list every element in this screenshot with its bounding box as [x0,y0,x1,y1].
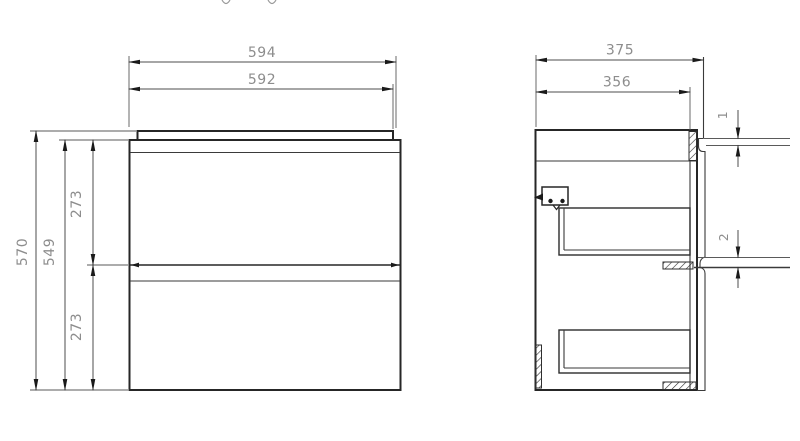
cabinet-dimension-drawing: 594 592 570 549 273 273 [0,0,800,441]
lower-drawer-box [559,330,690,373]
wall-rail-section-hatch-bottom [663,382,696,390]
side-cabinet-body [536,130,698,390]
dim-label-rear-rail-gap: 2 [716,233,731,241]
dim-label-lower-drawer-height: 273 [69,313,85,341]
wall-rail-section-hatch-middle [663,262,693,269]
mounting-bracket [534,187,568,210]
upper-drawer-box [559,208,690,255]
dim-label-overall-width: 594 [248,45,276,61]
wall-rail-section-hatch-top [689,132,697,161]
bracket-screw [560,199,564,203]
rear-profile-hook-top [699,139,706,268]
front-view [130,131,401,390]
dim-label-top-rear-gap: 1 [715,111,730,119]
front-top-panel [138,131,394,140]
front-height-dimensions: 570 549 273 273 [15,131,136,390]
top-rear-gap-dimension: 1 [704,110,790,167]
gap-tick-right [391,263,399,268]
dim-label-top-panel-width: 592 [248,72,276,88]
gap-tick-left [131,263,139,268]
dim-label-overall-depth: 375 [606,43,634,59]
front-panel-section-hatch-bottom-left [536,345,542,388]
side-depth-dimensions: 375 356 [536,43,704,131]
rear-profile-hook-bottom [697,268,705,391]
bracket-screw [548,199,552,203]
dim-label-carcass-height: 549 [42,238,58,266]
front-width-dimensions: 594 592 [129,45,396,129]
dim-label-upper-drawer-height: 273 [69,190,85,218]
cropped-text-fragment [222,0,276,4]
side-view [534,57,705,391]
lower-drawer-outline [559,330,690,373]
rear-rail-gap-dimension: 2 [694,230,790,288]
dim-label-overall-height: 570 [15,238,31,266]
dim-label-carcass-depth: 356 [603,75,631,91]
rear-wall-profile [697,57,705,391]
technical-drawing-page: 594 592 570 549 273 273 [0,0,800,441]
upper-drawer-outline [559,208,690,255]
